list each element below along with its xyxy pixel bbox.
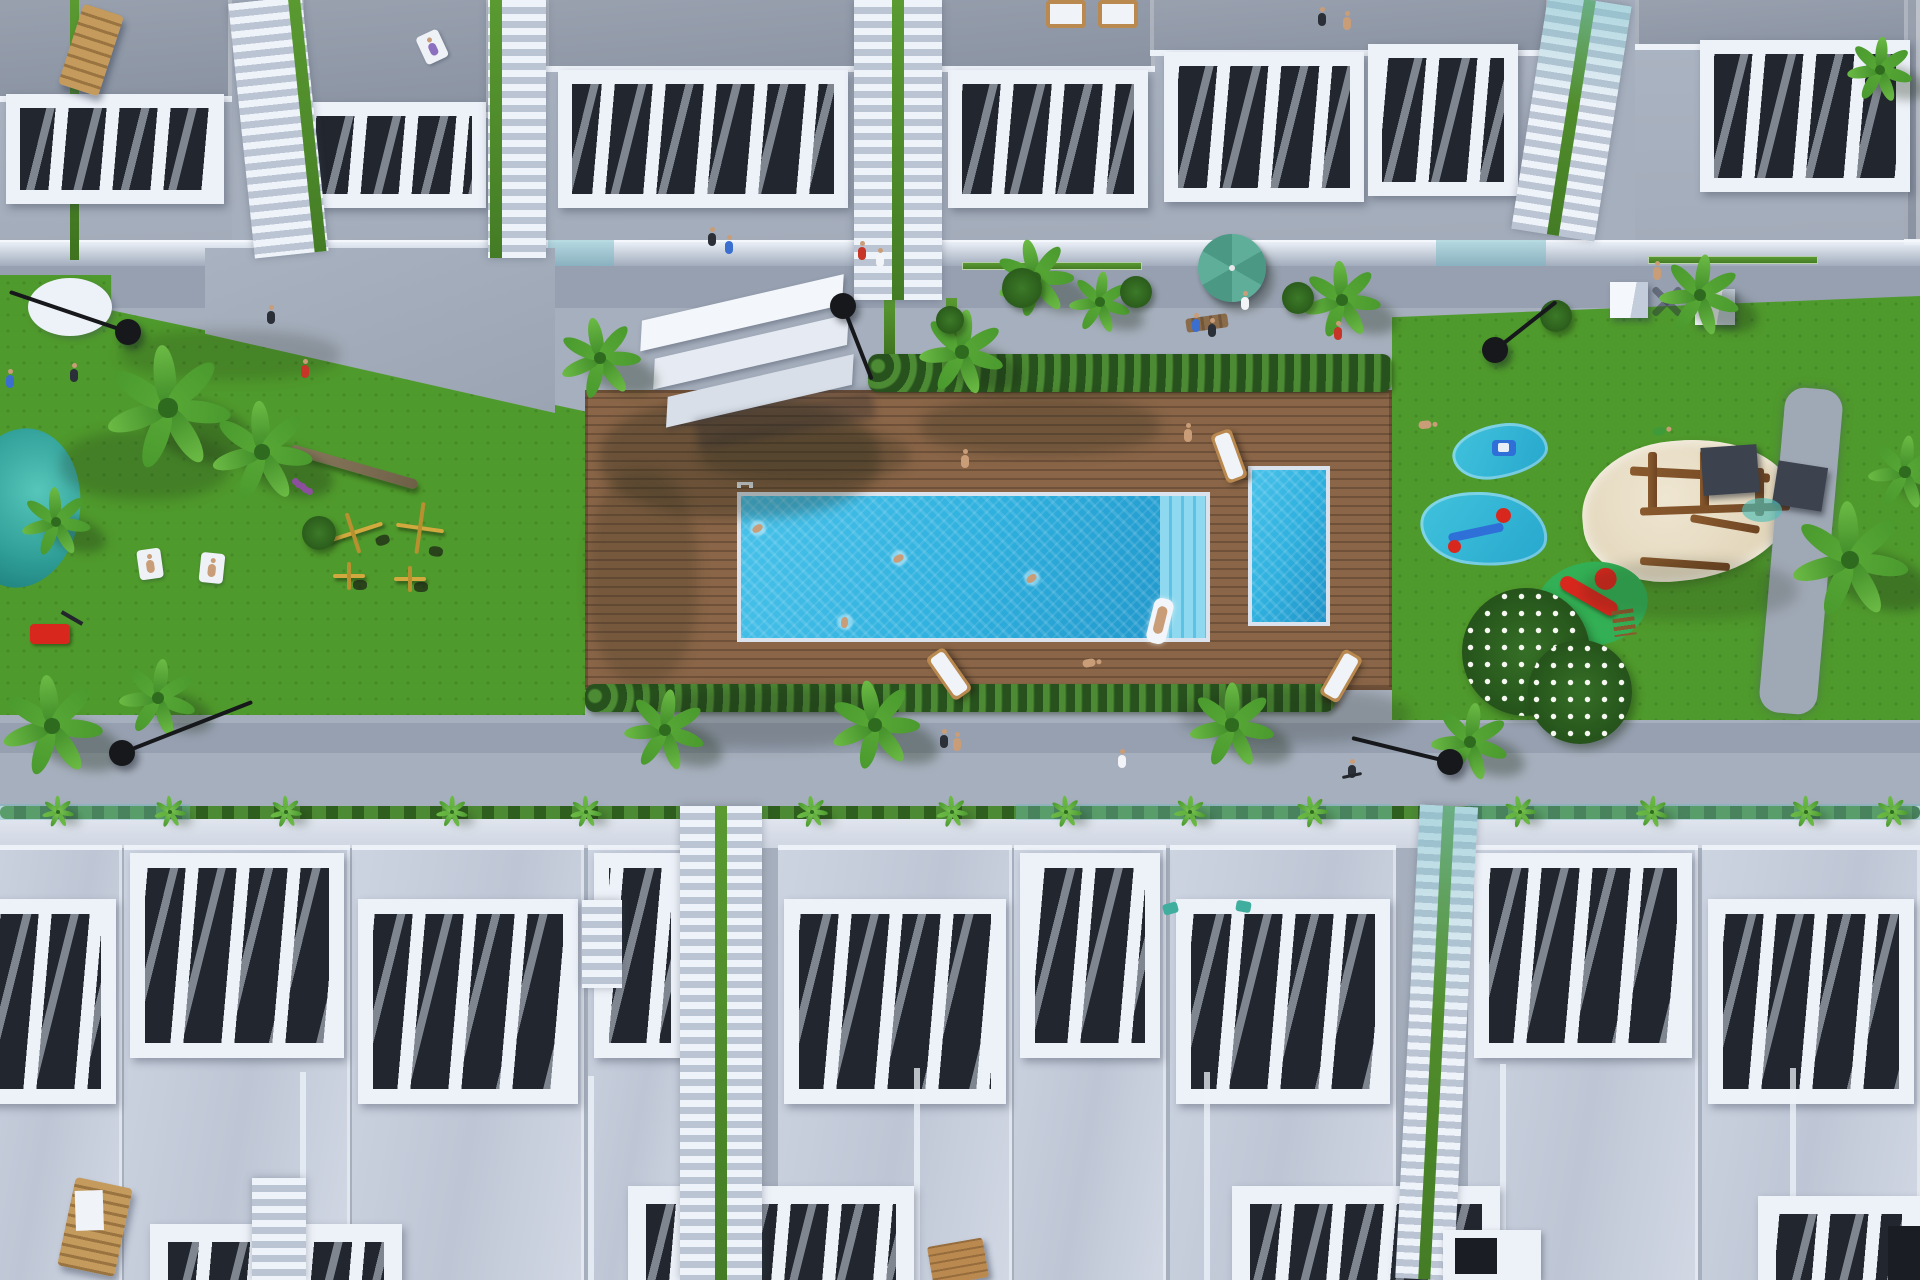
person-head (303, 359, 308, 364)
staircase (488, 0, 546, 258)
person (266, 305, 276, 324)
person (1333, 321, 1343, 340)
townhouse-terrace (0, 899, 116, 1104)
lounger-pad (1050, 4, 1082, 24)
person-head (72, 363, 77, 368)
roof-lounger (1098, 0, 1138, 28)
stairwell-box (1443, 1230, 1541, 1280)
palmetto-bush (1050, 796, 1082, 828)
toy-car-top (1498, 443, 1509, 452)
terrace-balusters (1164, 66, 1364, 188)
terrace-balusters (6, 108, 224, 190)
person-body (725, 241, 733, 254)
outdoor-gym-unit (333, 562, 365, 590)
person (857, 241, 867, 260)
parasol-pole (1229, 265, 1235, 271)
person (724, 235, 734, 254)
staircase-glass (1409, 804, 1478, 1020)
terrace-balusters (1020, 868, 1160, 1043)
palmetto-bush (436, 796, 468, 828)
person (1418, 419, 1438, 431)
kids-pool (1248, 466, 1330, 626)
person-head (1336, 321, 1341, 326)
townhouse-terrace (1020, 853, 1160, 1058)
person-head (1432, 421, 1437, 426)
terrace-balusters (0, 914, 116, 1089)
palmetto-bush (154, 796, 186, 828)
person (1240, 291, 1250, 310)
swimmer (837, 614, 853, 630)
palm-tree (829, 679, 921, 771)
terrace-balustrade (948, 70, 1148, 208)
person (952, 732, 962, 751)
street-lamp-head (115, 319, 141, 345)
person-head (878, 248, 883, 253)
staircase (252, 1178, 306, 1280)
palm-tree (1188, 681, 1276, 769)
person-head (727, 235, 732, 240)
person-body (70, 369, 78, 382)
aerial-render-scene (0, 0, 1920, 1280)
palm-tree (210, 400, 314, 504)
palm-crown (44, 718, 60, 734)
outdoor-gym-unit (394, 566, 426, 592)
palm-crown (1899, 466, 1910, 477)
terrace-balusters (558, 84, 848, 194)
cast-shadow (588, 470, 698, 685)
palm-tree (20, 486, 92, 558)
play-shade-roof (1700, 444, 1759, 496)
person-body (708, 233, 716, 246)
street-lamp-head (1437, 749, 1463, 775)
hedge-strip-vertical (884, 298, 895, 356)
palm-crown (152, 692, 164, 704)
staircase (854, 0, 942, 300)
person-head (1666, 426, 1672, 432)
outdoor-gym-unit (393, 499, 448, 557)
shrub (936, 306, 964, 334)
palm-crown (1464, 736, 1476, 748)
terrace-balusters (358, 914, 578, 1089)
palm-tree (623, 688, 707, 772)
play-beam (1648, 452, 1657, 512)
palm-crown (1841, 551, 1859, 569)
terrace-balusters (948, 84, 1148, 194)
palmetto-bush (570, 796, 602, 828)
lounger-pad (1102, 4, 1134, 24)
townhouse-terrace-row2 (628, 1186, 914, 1280)
person (939, 729, 949, 748)
shrub (1002, 268, 1042, 308)
person (1191, 313, 1201, 332)
terrace-balustrade (1164, 52, 1364, 202)
terrace-balusters (1176, 914, 1390, 1089)
water-toy-red-2 (1448, 540, 1461, 553)
person-body (858, 247, 866, 260)
roof-seam (1204, 1072, 1210, 1280)
person (875, 248, 885, 267)
palm-crown (955, 345, 968, 358)
person-head (1186, 423, 1191, 428)
roof-lounger (1046, 0, 1086, 28)
palm-crown (254, 444, 270, 460)
person-body (1653, 267, 1661, 280)
building-roof (300, 0, 490, 118)
gym-base (353, 580, 367, 590)
palmetto-bush (1636, 796, 1668, 828)
person-body (6, 375, 14, 388)
staircase-glass (1532, 0, 1632, 112)
palmetto-bush (796, 796, 828, 828)
person-body (1334, 327, 1342, 340)
person (1183, 423, 1193, 442)
person (1342, 11, 1352, 30)
purple-flowers (302, 486, 309, 493)
staircase (680, 806, 762, 1280)
terrace-balusters (1368, 58, 1518, 182)
person (423, 36, 440, 57)
person (1652, 261, 1662, 280)
person (300, 359, 310, 378)
shrub (1540, 300, 1572, 332)
person (206, 558, 218, 578)
street-lamp-head (109, 740, 135, 766)
person-body (146, 559, 156, 573)
swimmer (750, 520, 766, 536)
person-head (146, 554, 152, 560)
person-body (1208, 324, 1216, 337)
palm-tree (0, 674, 104, 778)
person-head (1655, 261, 1660, 266)
planter-cube (1610, 282, 1648, 318)
person-body (1418, 420, 1432, 429)
person-body (1343, 17, 1351, 30)
terrace-balustrade (1368, 44, 1518, 196)
person-head (269, 305, 274, 310)
glass-teal-panel (1436, 240, 1546, 266)
palm-crown (1336, 294, 1348, 306)
shrub (302, 516, 336, 550)
townhouse-terrace (358, 899, 578, 1104)
person-head (1194, 313, 1199, 318)
gym-bar-b (408, 566, 412, 592)
person-body (940, 735, 948, 748)
street-lamp-head (830, 293, 856, 319)
person (69, 363, 79, 382)
staircase-planter (892, 0, 904, 300)
cast-shadow (1582, 560, 1797, 620)
palmetto-bush (1174, 796, 1206, 828)
staircase-planter (490, 0, 502, 258)
terrace-balustrade (558, 70, 848, 208)
person-head (955, 732, 960, 737)
palmetto-bush (1876, 796, 1908, 828)
terrace-balusters (784, 914, 1006, 1089)
person-body (1241, 297, 1249, 310)
person (1117, 749, 1127, 768)
person-body (961, 455, 969, 468)
person-head (1350, 759, 1355, 764)
terrace-balusters (1474, 868, 1692, 1043)
chair-towel (75, 1190, 104, 1231)
palmetto-bush (1504, 796, 1536, 828)
terrace-balustrade (6, 94, 224, 204)
terrace-balusters (130, 868, 344, 1043)
person (1347, 759, 1357, 778)
shrub (1120, 276, 1152, 308)
person-head (1243, 291, 1248, 296)
white-curved-bench (28, 278, 112, 336)
cast-shadow (920, 396, 1160, 456)
person (960, 449, 970, 468)
palmetto-bush (936, 796, 968, 828)
palm-crown (1225, 718, 1238, 731)
person-head (942, 729, 947, 734)
palm-tree (1867, 434, 1920, 510)
stairwell-opening (1455, 1238, 1497, 1274)
person-head (1345, 11, 1350, 16)
palmetto-bush (1790, 796, 1822, 828)
person-body (1192, 319, 1200, 332)
palmetto-bush (42, 796, 74, 828)
person-body (1184, 429, 1192, 442)
person-head (1096, 658, 1102, 664)
person (144, 553, 157, 573)
palm-tree (558, 316, 642, 400)
terrace-balusters (1708, 914, 1914, 1089)
person-body (1118, 755, 1126, 768)
gym-bar-b (347, 562, 351, 590)
palm-tree (1068, 270, 1132, 334)
person-head (710, 227, 715, 232)
person-head (1120, 749, 1125, 754)
shrub (1282, 282, 1314, 314)
flower-bush (1528, 640, 1632, 744)
main-pool (737, 492, 1210, 642)
palm-crown (1095, 297, 1105, 307)
person-head (1210, 318, 1215, 323)
roof-seam (914, 1068, 920, 1280)
lawn-mower-toy (30, 624, 70, 644)
street-lamp-head (1482, 337, 1508, 363)
townhouse-terrace (1474, 853, 1692, 1058)
dark-doorway (1888, 1226, 1920, 1280)
terrace-balustrade (302, 102, 486, 208)
townhouse-terrace (1708, 899, 1914, 1104)
person-head (860, 241, 865, 246)
palm-crown (868, 718, 882, 732)
person-body (267, 311, 275, 324)
person-head (1320, 7, 1325, 12)
palm-tree (1846, 36, 1914, 104)
palm-crown (158, 398, 177, 417)
swimmer (1024, 570, 1040, 586)
terrace-balusters (302, 116, 486, 194)
person-head (210, 558, 215, 563)
parasol (1198, 234, 1266, 302)
person-body (953, 738, 961, 751)
staircase (582, 900, 622, 988)
person (5, 369, 15, 388)
person-body (1082, 658, 1096, 668)
person (707, 227, 717, 246)
play-puddle (1742, 498, 1782, 522)
gym-base (414, 582, 428, 592)
terrace-balusters (628, 1204, 914, 1280)
person (1317, 7, 1327, 26)
glass-teal-panel (548, 240, 614, 266)
person-body (876, 254, 884, 267)
person (1207, 318, 1217, 337)
person-body (301, 365, 309, 378)
swimmer (891, 550, 907, 566)
palmetto-bush (1296, 796, 1328, 828)
palm-tree (1790, 500, 1910, 620)
person-head (8, 369, 13, 374)
water-toy-red-1 (1496, 508, 1511, 523)
gym-base (428, 546, 443, 558)
purple-flowers (295, 481, 302, 488)
palmetto-bush (270, 796, 302, 828)
person-head (963, 449, 968, 454)
staircase-planter (715, 806, 727, 1280)
person-body (1318, 13, 1326, 26)
roof-seam (588, 1076, 594, 1280)
townhouse-terrace (784, 899, 1006, 1104)
float-person (1152, 605, 1168, 635)
teal-cushion (1235, 900, 1252, 913)
palm-tree (1658, 253, 1742, 337)
townhouse-terrace (130, 853, 344, 1058)
